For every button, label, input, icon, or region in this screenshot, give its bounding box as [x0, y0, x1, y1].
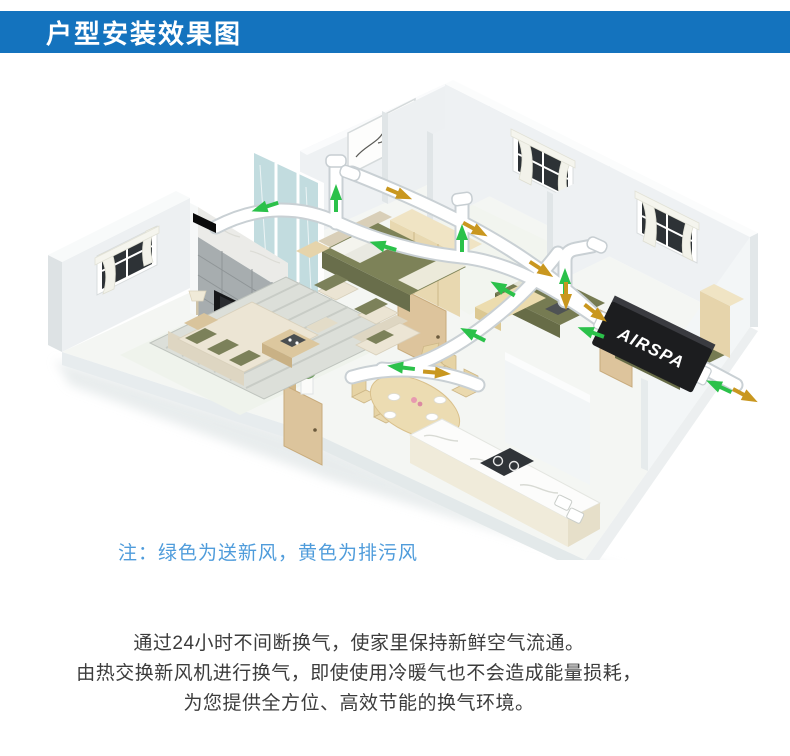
apartment-illustration: AIRSPA: [0, 55, 790, 560]
description-line: 由热交换新风机进行换气，即使使用冷暖气也不会造成能量损耗，: [0, 659, 718, 689]
legend-note: 注：绿色为送新风，黄色为排污风: [118, 538, 418, 565]
description-line: 通过24小时不间断换气，使家里保持新鲜空气流通。: [0, 629, 718, 659]
isometric-apartment-svg: AIRSPA: [0, 55, 790, 560]
description-paragraph: 通过24小时不间断换气，使家里保持新鲜空气流通。 由热交换新风机进行换气，即使使…: [0, 629, 718, 719]
section-title: 户型安装效果图: [0, 14, 242, 51]
description-line: 为您提供全方位、高效节能的换气环境。: [0, 689, 718, 719]
section-header-bar: 户型安装效果图: [0, 11, 790, 53]
